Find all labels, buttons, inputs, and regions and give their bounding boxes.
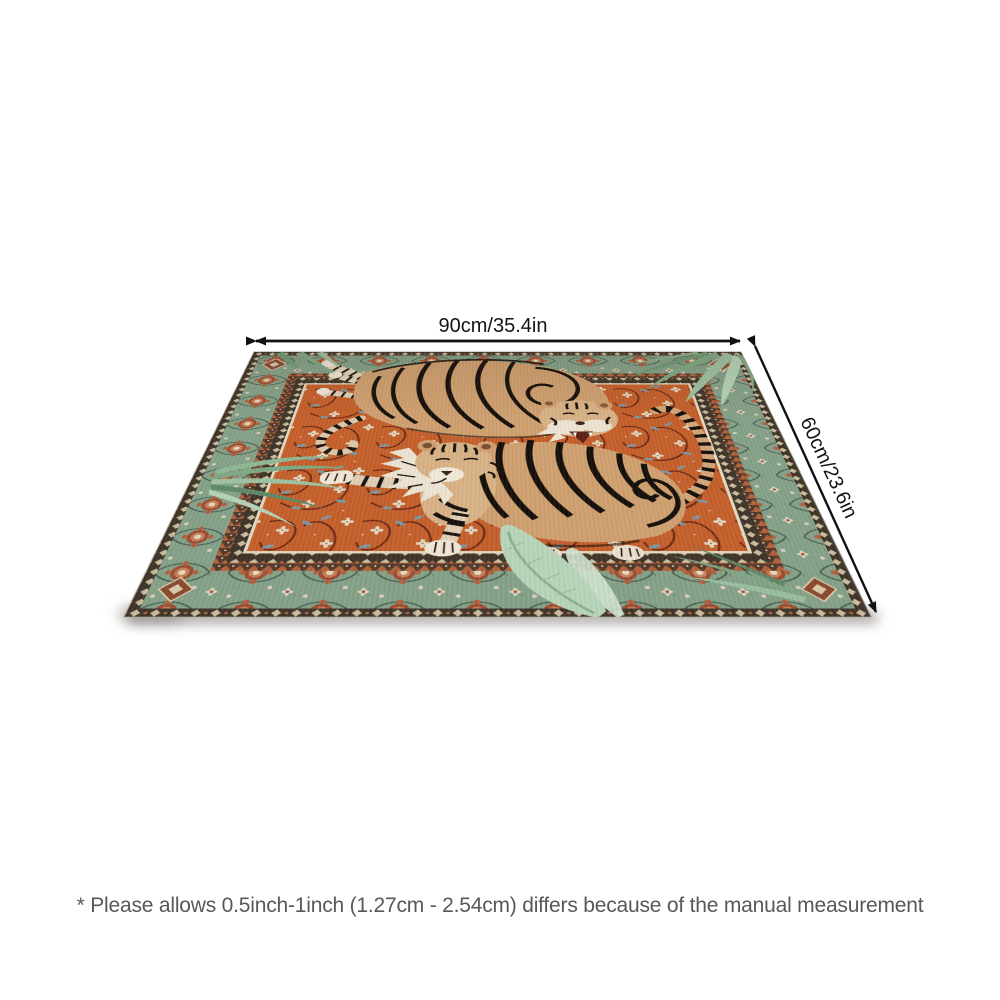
rug-artwork xyxy=(123,352,872,618)
width-dimension-label: 90cm/35.4in xyxy=(390,315,596,338)
rug-image xyxy=(123,352,872,618)
measurement-disclaimer: * Please allows 0.5inch-1inch (1.27cm - … xyxy=(0,894,1000,918)
depth-shading xyxy=(123,352,872,618)
product-dimension-image: 90cm/35.4in 60cm/23.6in * Please allows … xyxy=(0,0,1000,1000)
